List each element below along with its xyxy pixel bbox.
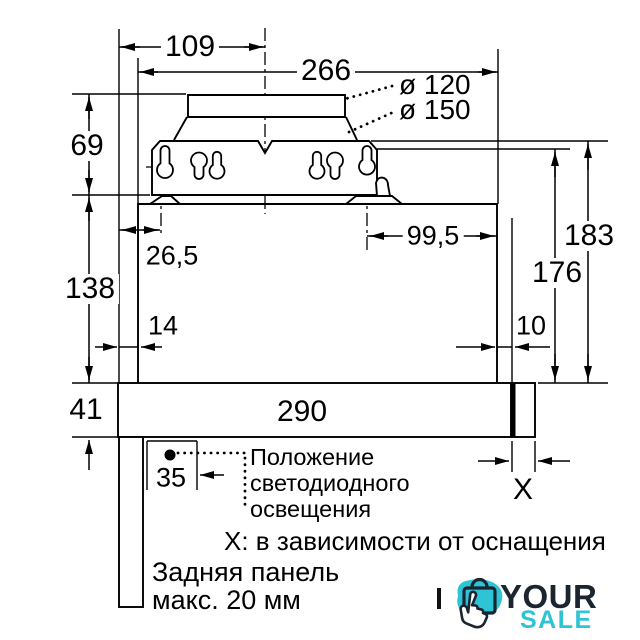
back-panel: [119, 437, 143, 607]
dim-109: 109: [161, 32, 219, 62]
dim-41: 41: [69, 395, 102, 425]
dim-183: 183: [560, 221, 618, 251]
dim-10: 10: [516, 313, 546, 340]
led-note-line1: Положение: [250, 444, 410, 470]
led-position-note: Положение светодиодного освещения: [250, 444, 410, 522]
logo-icon: [456, 579, 502, 630]
dim-dia-150: ø 150: [399, 96, 471, 124]
dim-x: X: [513, 475, 533, 505]
back-panel-note: Задняя панель макс. 20 мм: [152, 558, 339, 614]
dim-99-5: 99,5: [403, 223, 464, 250]
led-position-dot: [165, 450, 176, 461]
back-panel-note-line2: макс. 20 мм: [152, 586, 339, 614]
logo-word-sale: SALE: [520, 606, 593, 635]
dim-138: 138: [61, 274, 119, 304]
dim-14: 14: [148, 313, 178, 340]
led-note-line3: освещения: [250, 496, 410, 522]
dim-35: 35: [156, 465, 186, 492]
dim-26-5: 26,5: [146, 243, 199, 270]
dim-69: 69: [66, 131, 107, 161]
installation-diagram: 109 266 ø 120 ø 150 69 138 41 26,5 99,5 …: [0, 0, 640, 640]
x-equipment-note: X: в зависимости от оснащения: [224, 527, 606, 555]
led-note-line2: светодиодного: [250, 470, 410, 496]
dim-176: 176: [528, 258, 586, 288]
cropped-letter-mark: [437, 588, 441, 609]
side-tab: [376, 178, 390, 196]
dim-290: 290: [273, 397, 331, 427]
back-panel-note-line1: Задняя панель: [152, 558, 339, 586]
dim-266: 266: [297, 56, 355, 86]
